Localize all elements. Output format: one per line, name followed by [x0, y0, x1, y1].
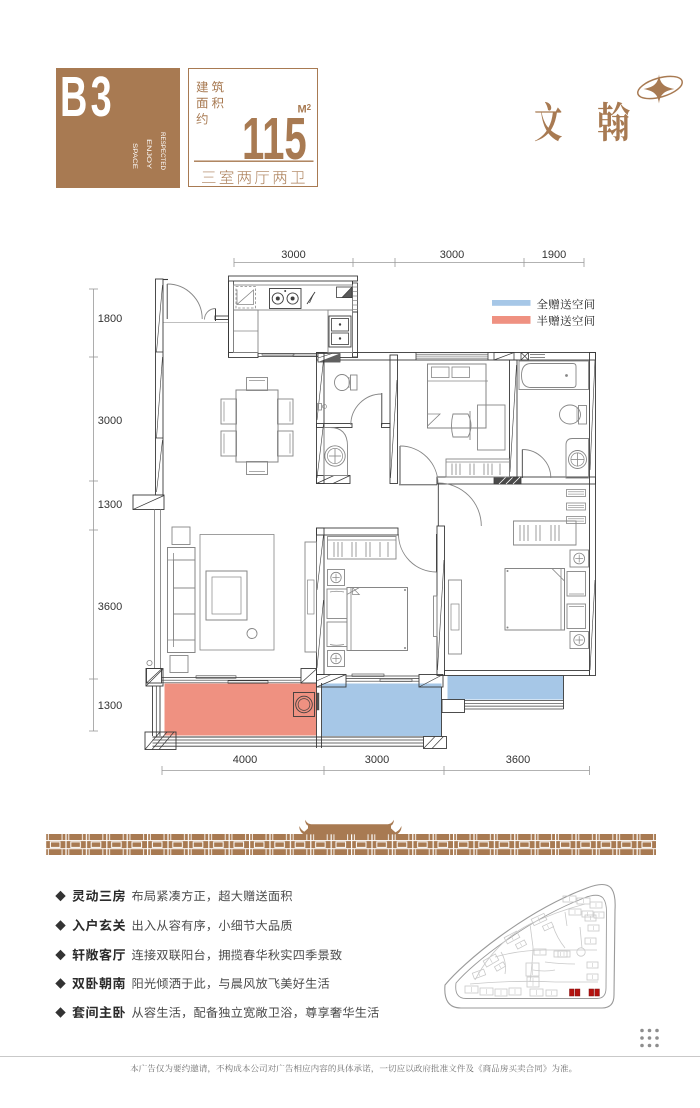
svg-text:4000: 4000 — [233, 754, 257, 766]
svg-text:1300: 1300 — [98, 499, 122, 511]
svg-text:3600: 3600 — [506, 754, 530, 766]
svg-text:1900: 1900 — [542, 249, 566, 261]
svg-text:1800: 1800 — [98, 313, 122, 325]
svg-text:3600: 3600 — [98, 601, 122, 613]
svg-text:3000: 3000 — [440, 249, 464, 261]
svg-text:1300: 1300 — [98, 700, 122, 712]
svg-text:3000: 3000 — [281, 249, 305, 261]
svg-text:3000: 3000 — [365, 754, 389, 766]
svg-text:3000: 3000 — [98, 415, 122, 427]
